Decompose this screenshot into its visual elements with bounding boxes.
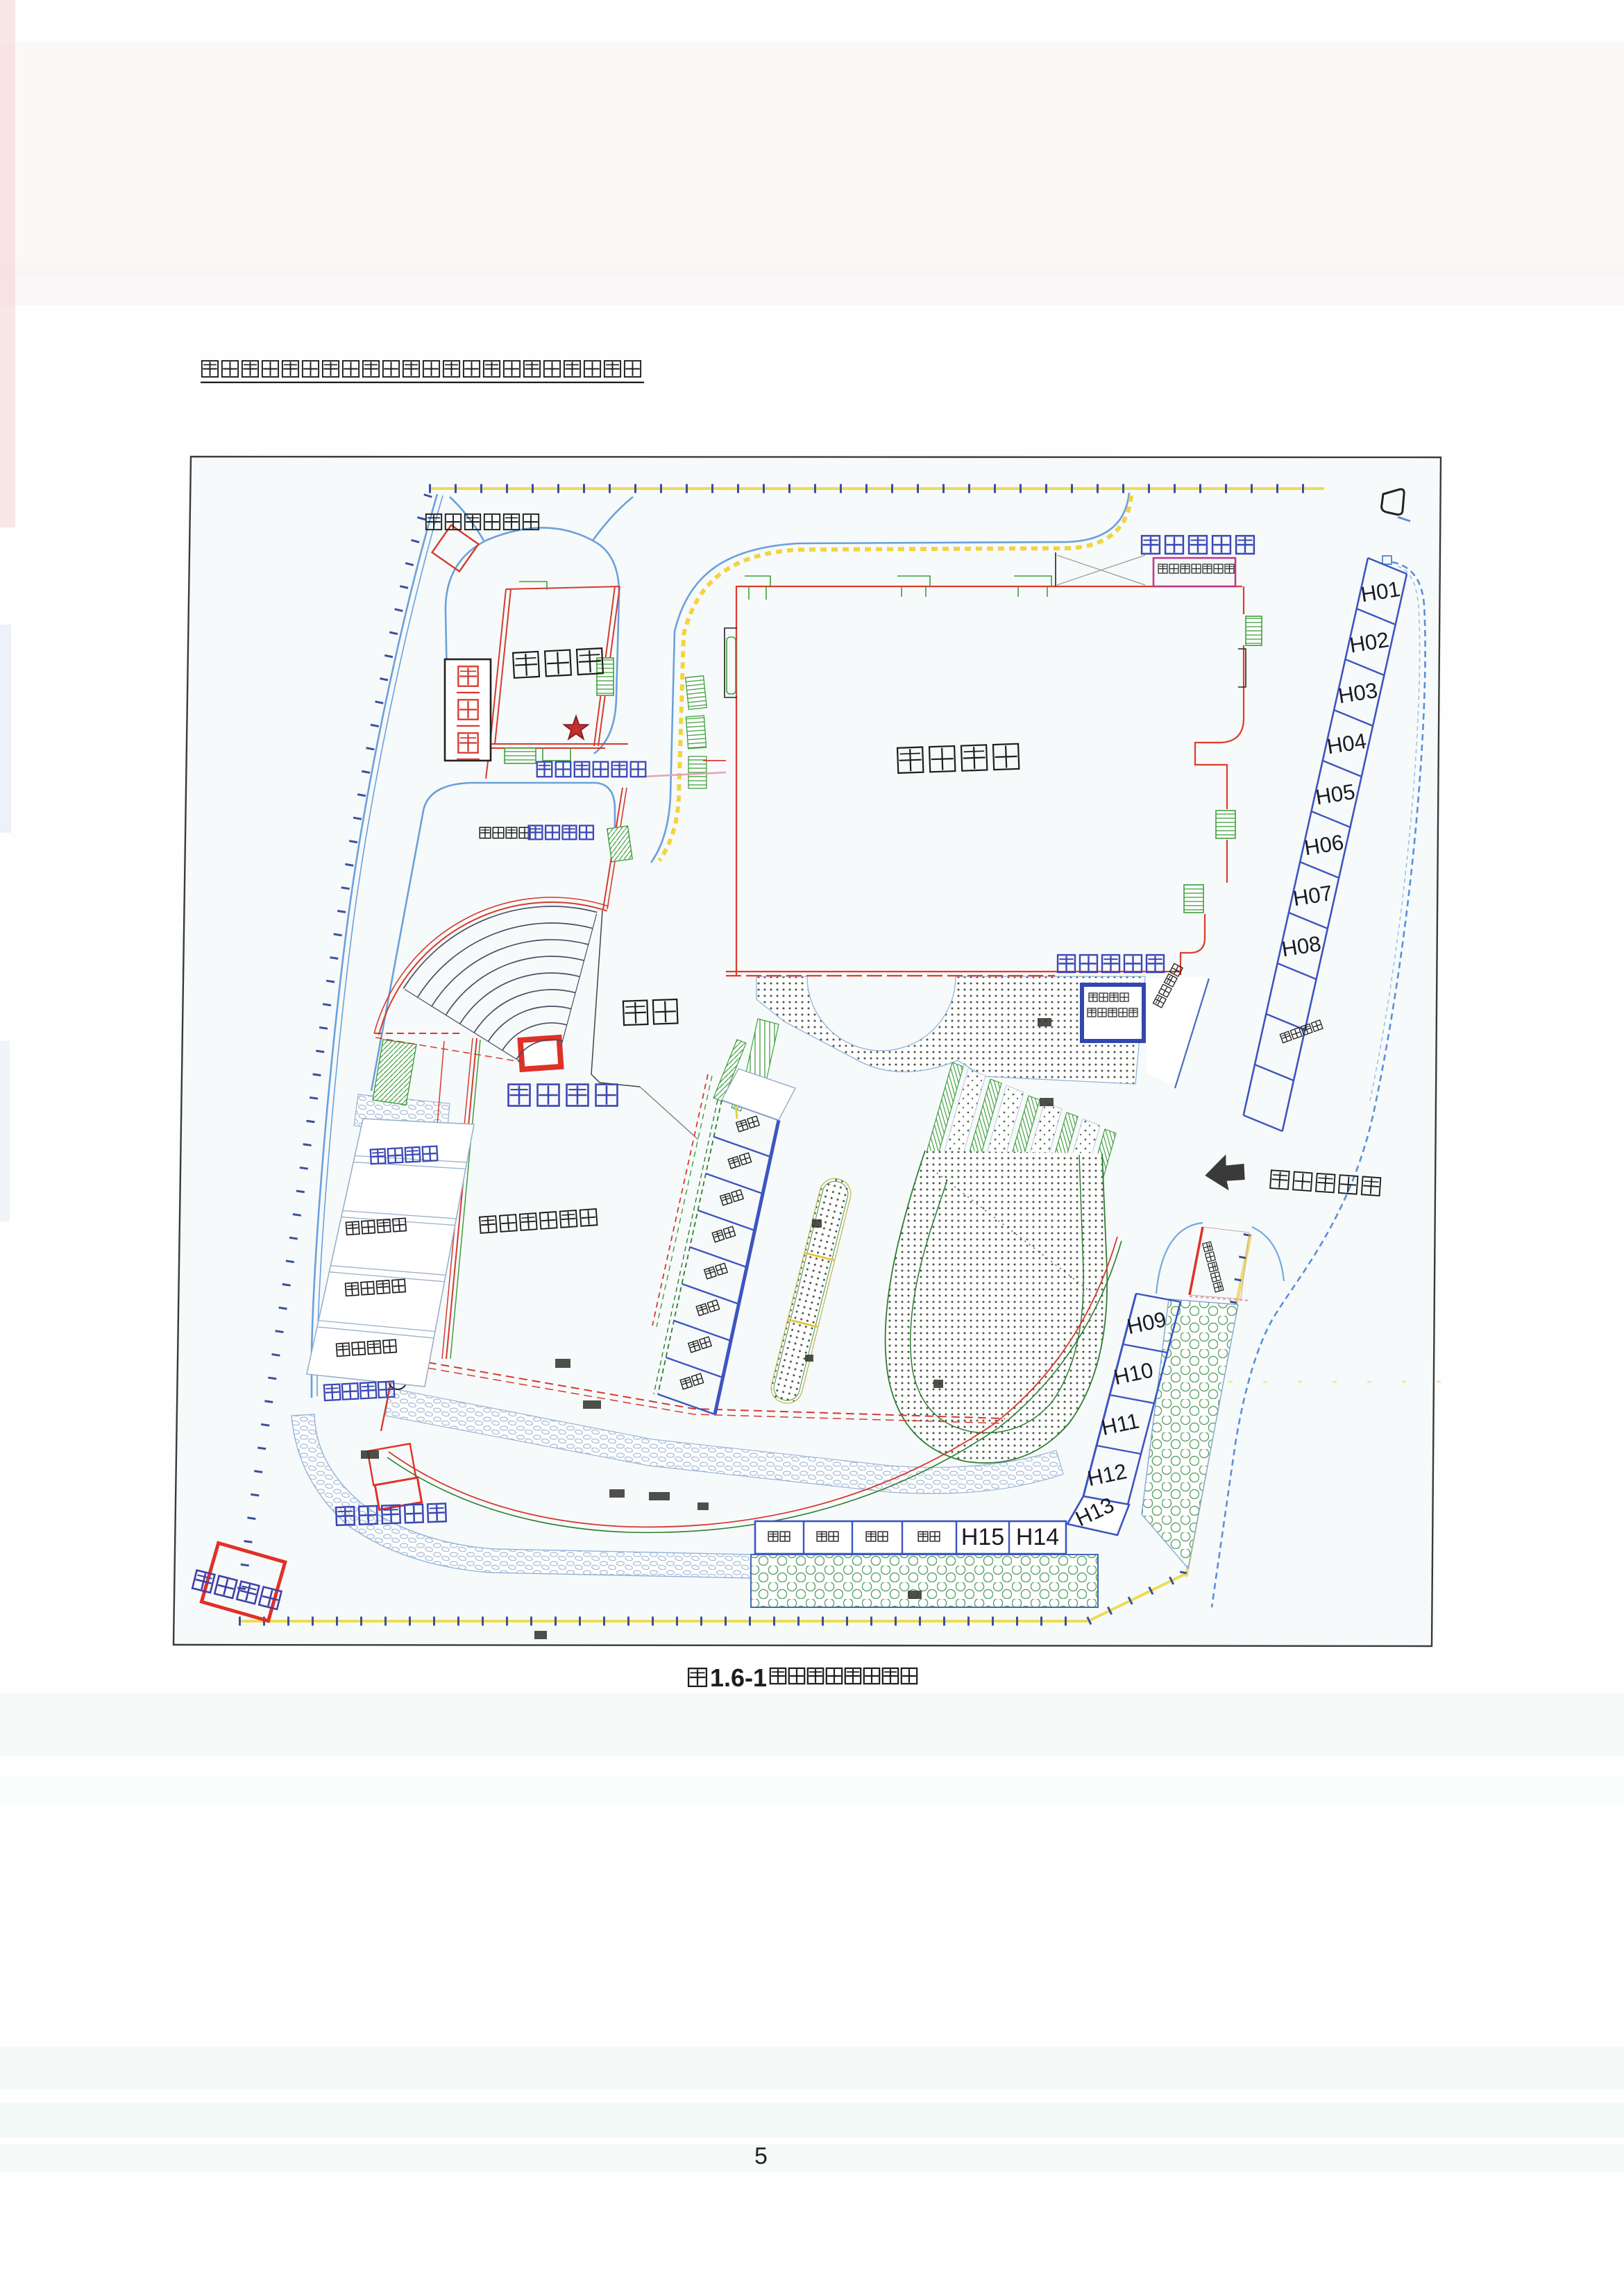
svg-text:H14: H14 <box>1016 1524 1059 1550</box>
svg-text:1.6-1: 1.6-1 <box>710 1663 767 1692</box>
svg-text:H15: H15 <box>961 1524 1004 1550</box>
svg-text:5: 5 <box>754 2143 768 2169</box>
